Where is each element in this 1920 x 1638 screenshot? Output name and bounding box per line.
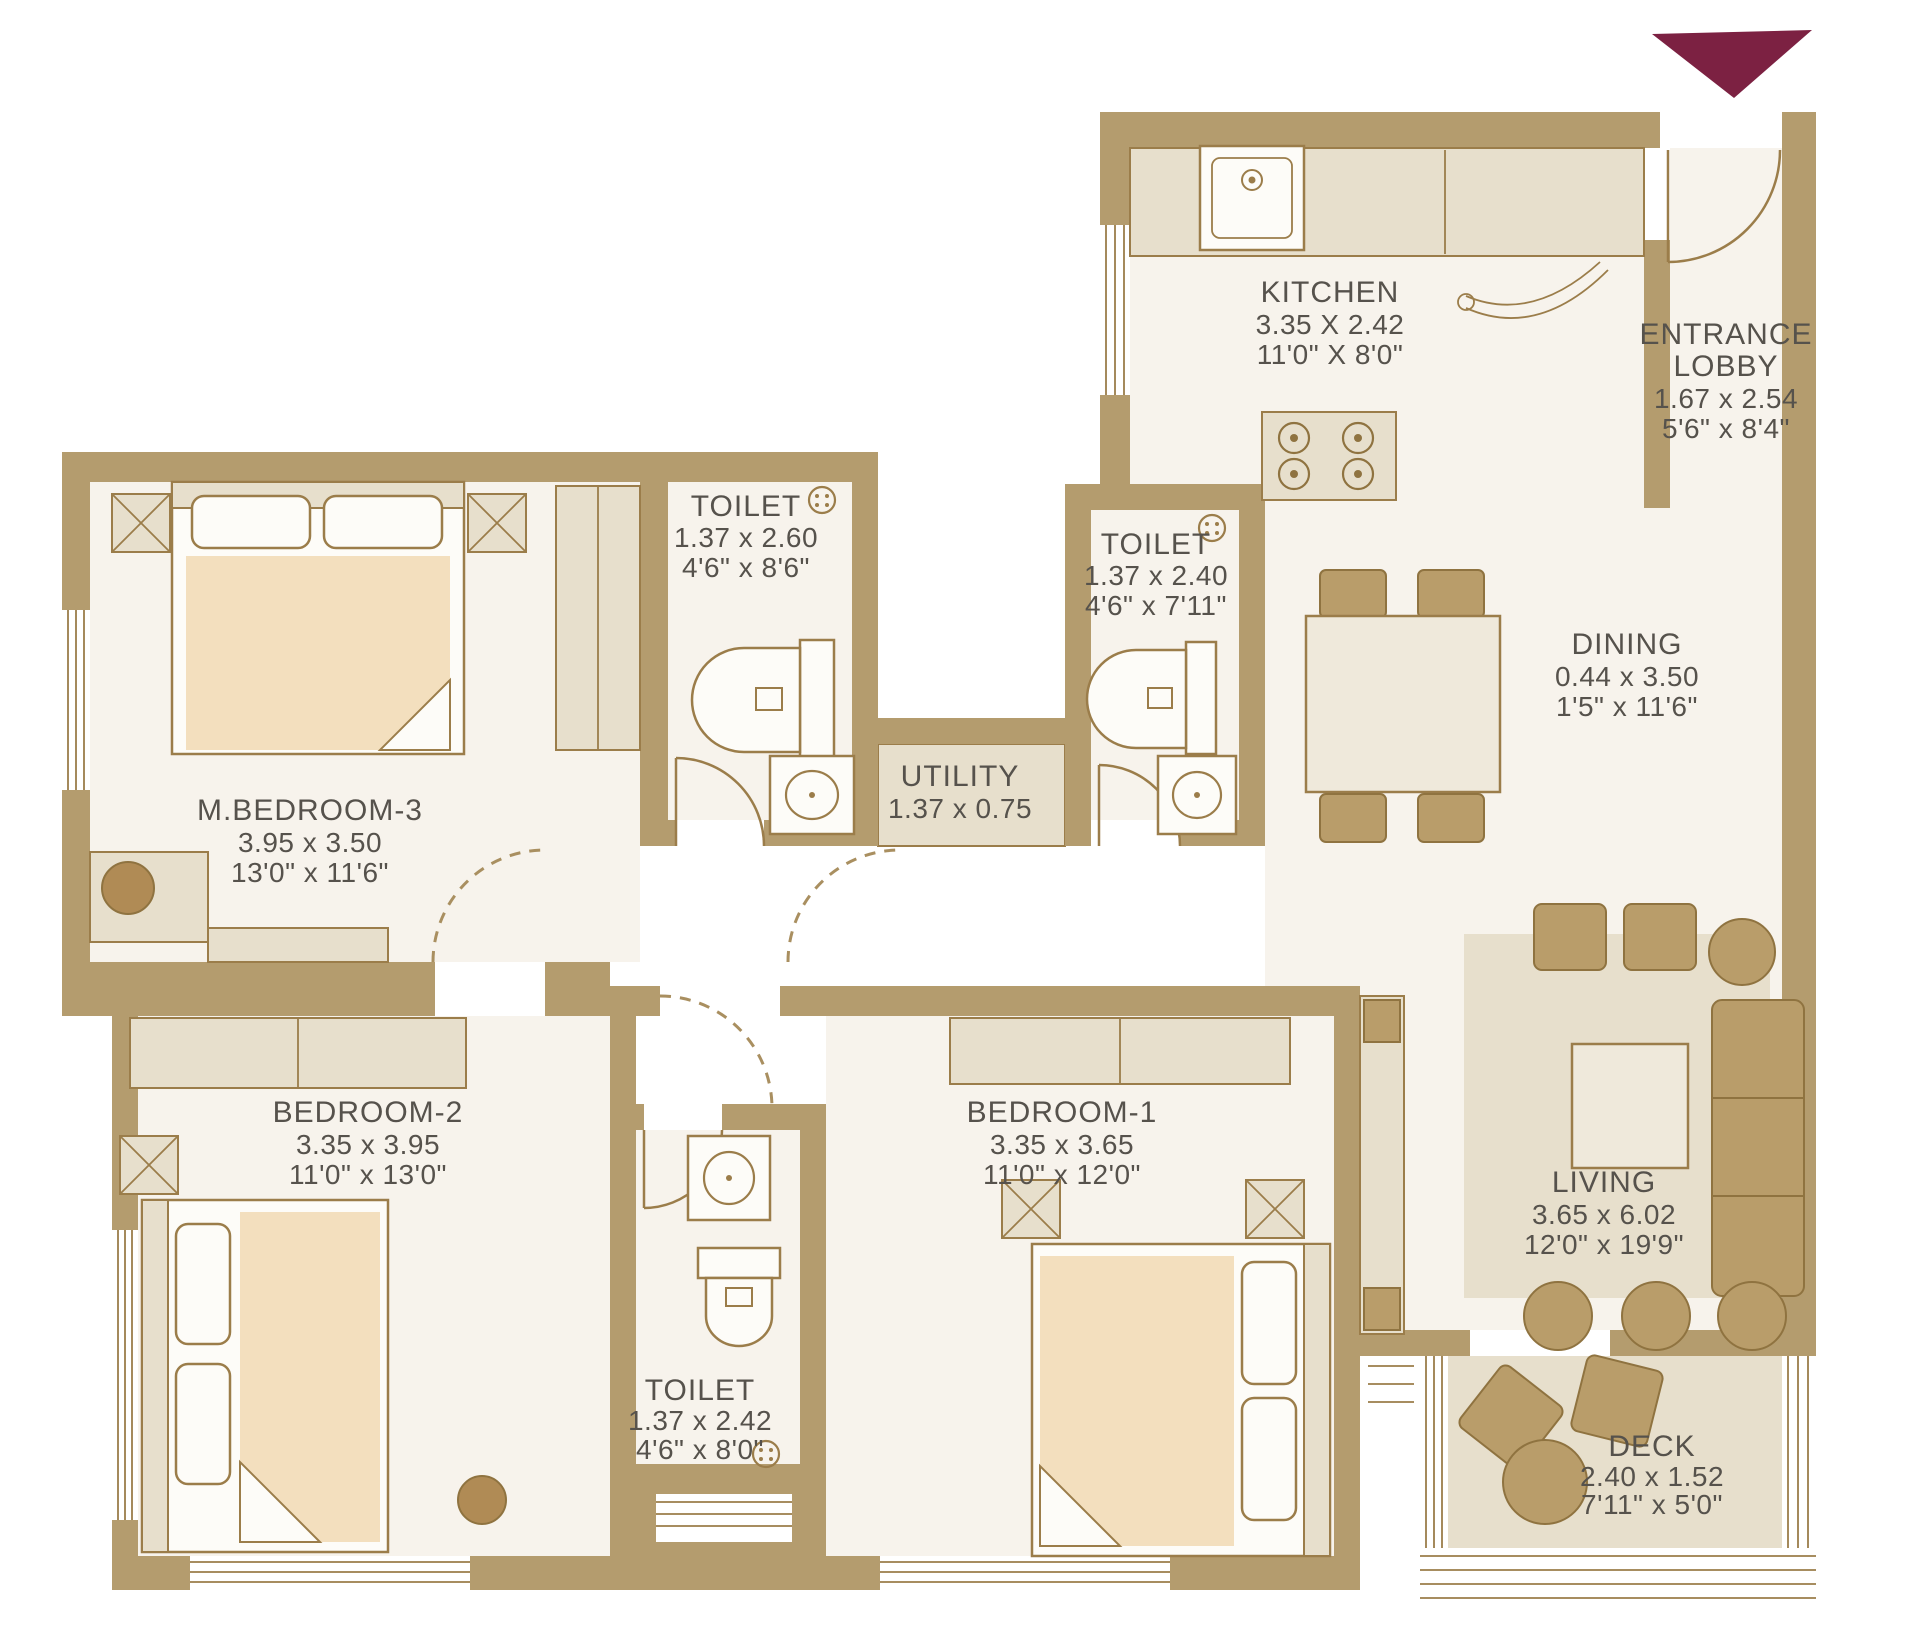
floor-plan-drawing: KITCHEN 3.35 X 2.42 11'0" X 8'0" ENTRANC… <box>0 0 1920 1638</box>
wall <box>780 986 1360 1016</box>
lamp-table-icon <box>112 494 170 552</box>
room-dims-metric: 3.95 x 3.50 <box>238 827 382 858</box>
dresser-icon <box>90 852 208 942</box>
wall <box>62 962 435 1016</box>
wall <box>1644 240 1670 508</box>
pillow-icon <box>192 496 310 548</box>
room-name: LOBBY <box>1673 350 1778 383</box>
label-utility: UTILITY 1.37 x 0.75 <box>888 760 1032 824</box>
room-name: M.BEDROOM-3 <box>197 794 423 827</box>
room-name: DECK <box>1608 1430 1695 1463</box>
door-swing-dashed-arc <box>788 850 900 962</box>
room-dims-imperial: 12'0" x 19'9" <box>1524 1229 1684 1260</box>
toilet-wc-icon <box>692 640 834 760</box>
room-name: DINING <box>1572 628 1683 661</box>
wall <box>722 1104 800 1130</box>
room-dims-imperial: 11'0" x 12'0" <box>983 1159 1141 1190</box>
label-kitchen: KITCHEN 3.35 X 2.42 11'0" X 8'0" <box>1256 276 1405 370</box>
wall <box>1065 484 1265 510</box>
plant-pot-icon <box>102 862 154 914</box>
room-name: TOILET <box>1101 528 1211 561</box>
floor-plan-page: KITCHEN 3.35 X 2.42 11'0" X 8'0" ENTRANC… <box>0 0 1920 1638</box>
toilet-wc-icon <box>698 1248 780 1346</box>
label-bedroom-1: BEDROOM-1 3.35 x 3.65 11'0" x 12'0" <box>967 1096 1158 1190</box>
plant-pot-icon <box>458 1476 506 1524</box>
room-dims-metric: 3.35 x 3.65 <box>990 1129 1134 1160</box>
room-dims-metric: 3.65 x 6.02 <box>1532 1199 1676 1230</box>
room-dims-imperial: 1'5" x 11'6" <box>1556 691 1698 722</box>
deck-table-icon <box>1503 1440 1587 1524</box>
wardrobe-icon <box>556 486 640 750</box>
wall <box>852 452 878 846</box>
pouf-icon <box>1622 1282 1690 1350</box>
room-dims-imperial: 11'0" x 13'0" <box>289 1159 447 1190</box>
pillow-icon <box>324 496 442 548</box>
window <box>880 1556 1170 1590</box>
round-side-table-icon <box>1709 919 1775 985</box>
double-bed-icon <box>142 1200 388 1552</box>
room-dims-metric: 1.67 x 2.54 <box>1654 383 1798 414</box>
window <box>1100 225 1130 395</box>
wall <box>610 986 636 1590</box>
pillow-icon <box>176 1364 230 1484</box>
dining-table-icon <box>1306 616 1500 792</box>
low-dresser-icon <box>208 928 388 962</box>
lamp-table-icon <box>1246 1180 1304 1238</box>
wall <box>636 986 660 1016</box>
wardrobe-icon <box>950 1018 1290 1084</box>
sink-icon <box>1158 756 1236 834</box>
lamp-table-icon <box>120 1136 178 1194</box>
window <box>190 1556 470 1590</box>
sofa-icon <box>1712 1000 1804 1296</box>
room-dims-imperial: 13'0" x 11'6" <box>231 857 389 888</box>
door-swing-dashed-arc <box>660 996 772 1108</box>
label-toilet-master: TOILET 1.37 x 2.60 4'6" x 8'6" <box>674 490 818 583</box>
deck-steps <box>1368 1366 1414 1402</box>
coffee-table-icon <box>1572 1044 1688 1168</box>
room-dims-metric: 1.37 x 2.60 <box>674 522 818 553</box>
label-toilet-common: TOILET 1.37 x 2.40 4'6" x 7'11" <box>1084 528 1228 621</box>
room-dims-metric: 1.37 x 2.40 <box>1084 560 1228 591</box>
sink-icon <box>770 756 854 834</box>
double-bed-icon <box>1032 1244 1330 1556</box>
wall <box>1334 986 1360 1590</box>
stove-hob-icon <box>1262 412 1396 500</box>
room-dims-imperial: 11'0" X 8'0" <box>1257 339 1404 370</box>
double-bed-icon <box>172 482 464 754</box>
pillow-icon <box>1242 1262 1296 1384</box>
room-name: KITCHEN <box>1261 276 1400 309</box>
wall <box>62 452 878 482</box>
armchair-icon <box>1534 904 1606 970</box>
window <box>656 1494 792 1542</box>
wall <box>1239 484 1265 846</box>
pillow-icon <box>1242 1398 1296 1520</box>
room-name: TOILET <box>691 490 801 523</box>
room-dims-metric: 1.37 x 2.42 <box>628 1405 772 1436</box>
wall <box>800 1104 826 1516</box>
room-dims-imperial: 4'6" x 7'11" <box>1085 590 1227 621</box>
side-ledge <box>1360 996 1404 1334</box>
room-dims-imperial: 5'6" x 8'4" <box>1662 413 1790 444</box>
room-name: TOILET <box>645 1374 755 1407</box>
armchair-icon <box>1624 904 1696 970</box>
wardrobe-icon <box>130 1018 466 1088</box>
pillow-icon <box>176 1224 230 1344</box>
label-toilet-bedroom1: TOILET 1.37 x 2.42 4'6" x 8'0" <box>628 1374 772 1465</box>
sink-icon <box>688 1136 770 1220</box>
wall <box>545 962 610 1016</box>
lamp-table-icon <box>468 494 526 552</box>
wall <box>640 452 668 846</box>
label-dining: DINING 0.44 x 3.50 1'5" x 11'6" <box>1555 628 1699 722</box>
kitchen-sink-icon <box>1200 146 1304 250</box>
room-name: BEDROOM-1 <box>967 1096 1158 1129</box>
toilet-wc-icon <box>1087 642 1216 754</box>
dining-chair-icon <box>1320 794 1386 842</box>
window <box>112 1230 138 1520</box>
room-dims-metric: 3.35 X 2.42 <box>1256 309 1405 340</box>
room-name: ENTRANCE <box>1639 318 1812 351</box>
dining-chair-icon <box>1418 570 1484 618</box>
room-dims-imperial: 7'11" x 5'0" <box>1581 1489 1723 1520</box>
room-name: LIVING <box>1552 1166 1656 1199</box>
wall <box>636 1104 644 1130</box>
dining-chair-icon <box>1320 570 1386 618</box>
direction-arrow-icon <box>1652 30 1812 98</box>
room-dims-imperial: 4'6" x 8'6" <box>682 552 810 583</box>
window <box>62 610 90 790</box>
pouf-icon <box>1524 1282 1592 1350</box>
room-dims-metric: 1.37 x 0.75 <box>888 793 1032 824</box>
room-dims-metric: 3.35 x 3.95 <box>296 1129 440 1160</box>
label-bedroom-2: BEDROOM-2 3.35 x 3.95 11'0" x 13'0" <box>273 1096 464 1190</box>
room-dims-metric: 2.40 x 1.52 <box>1580 1461 1724 1492</box>
room-dims-imperial: 4'6" x 8'0" <box>636 1434 764 1465</box>
room-dims-metric: 0.44 x 3.50 <box>1555 661 1699 692</box>
wall <box>1100 112 1660 148</box>
wall <box>1065 484 1091 846</box>
wall <box>852 718 1091 744</box>
dining-chair-icon <box>1418 794 1484 842</box>
room-name: BEDROOM-2 <box>273 1096 464 1129</box>
room-name: UTILITY <box>901 760 1020 793</box>
pouf-icon <box>1718 1282 1786 1350</box>
